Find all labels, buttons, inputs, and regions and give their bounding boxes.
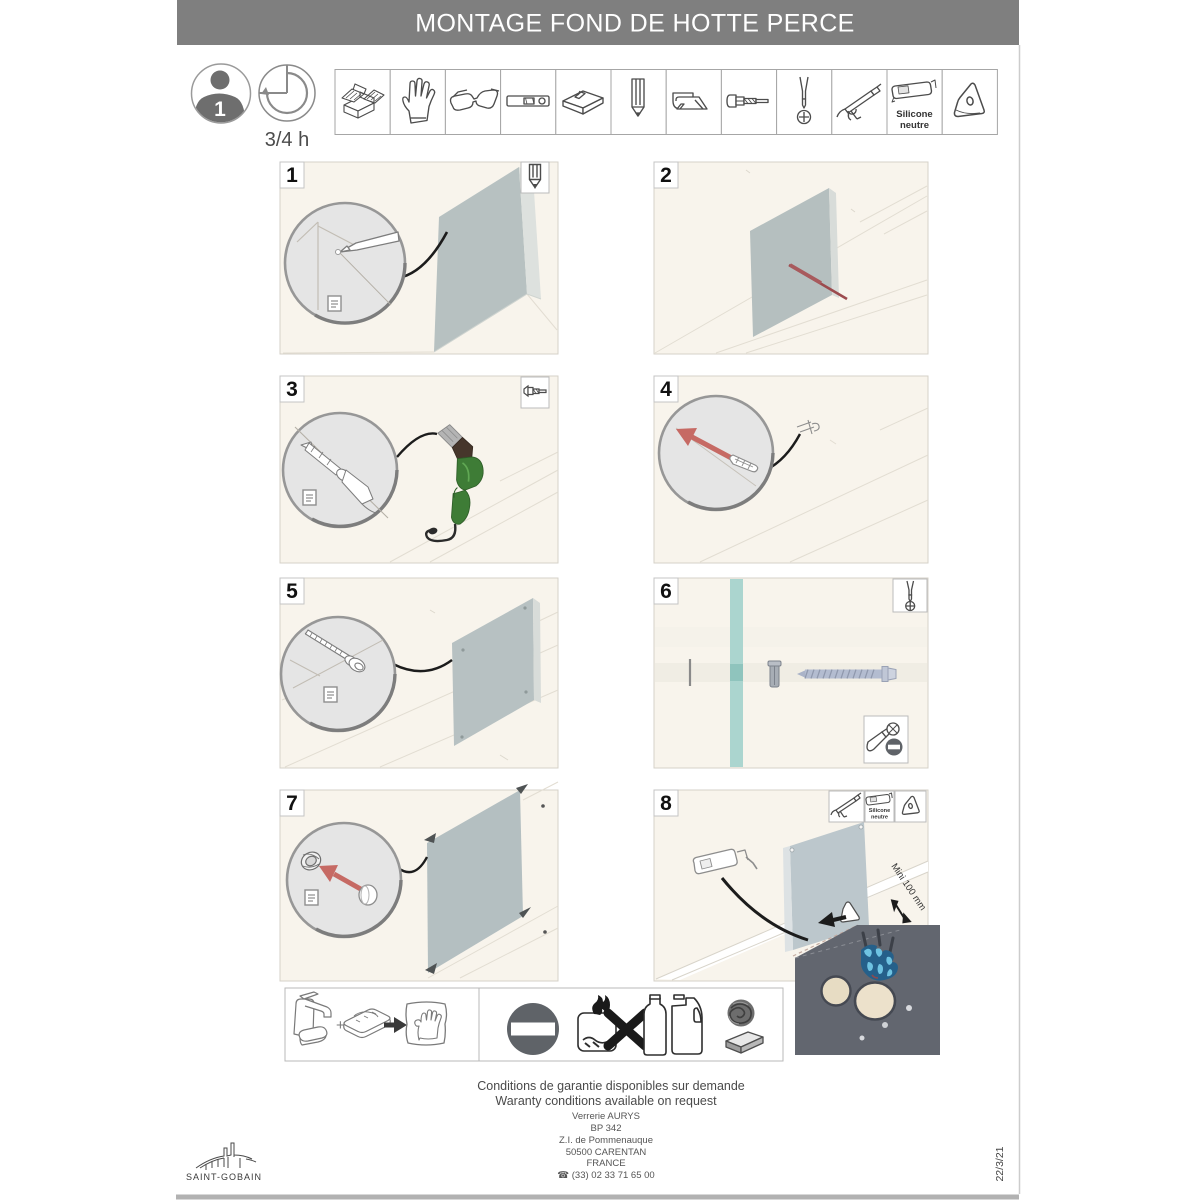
svg-text:7: 7 bbox=[286, 792, 298, 815]
svg-text:3/4 h: 3/4 h bbox=[265, 129, 309, 151]
svg-text:Conditions de garantie disponi: Conditions de garantie disponibles sur d… bbox=[477, 1079, 745, 1093]
svg-text:1: 1 bbox=[286, 164, 298, 187]
svg-text:3: 3 bbox=[286, 378, 298, 401]
svg-text:22/3/21: 22/3/21 bbox=[994, 1146, 1006, 1181]
svg-text:☎ (33) 02 33 71 65 00: ☎ (33) 02 33 71 65 00 bbox=[557, 1170, 654, 1181]
svg-text:5: 5 bbox=[286, 580, 298, 603]
svg-text:Verrerie AURYS: Verrerie AURYS bbox=[572, 1111, 640, 1122]
svg-text:Silicone: Silicone bbox=[869, 808, 890, 814]
svg-text:FRANCE: FRANCE bbox=[586, 1158, 625, 1169]
svg-text:Z.I. de Pommenauque: Z.I. de Pommenauque bbox=[559, 1135, 653, 1146]
svg-text:4: 4 bbox=[660, 378, 672, 401]
svg-text:MONTAGE FOND DE HOTTE PERCE: MONTAGE FOND DE HOTTE PERCE bbox=[415, 10, 855, 38]
svg-text:Silicone: Silicone bbox=[896, 109, 932, 120]
svg-text:2: 2 bbox=[660, 164, 672, 187]
svg-text:SAINT-GOBAIN: SAINT-GOBAIN bbox=[186, 1172, 262, 1182]
svg-text:Waranty conditions available o: Waranty conditions available on request bbox=[495, 1094, 717, 1108]
svg-text:50500 CARENTAN: 50500 CARENTAN bbox=[566, 1147, 647, 1158]
svg-text:neutre: neutre bbox=[900, 120, 929, 131]
svg-text:BP 342: BP 342 bbox=[591, 1123, 622, 1134]
svg-text:neutre: neutre bbox=[871, 815, 888, 821]
svg-text:1: 1 bbox=[214, 98, 226, 121]
svg-text:6: 6 bbox=[660, 580, 672, 603]
svg-text:8: 8 bbox=[660, 792, 672, 815]
